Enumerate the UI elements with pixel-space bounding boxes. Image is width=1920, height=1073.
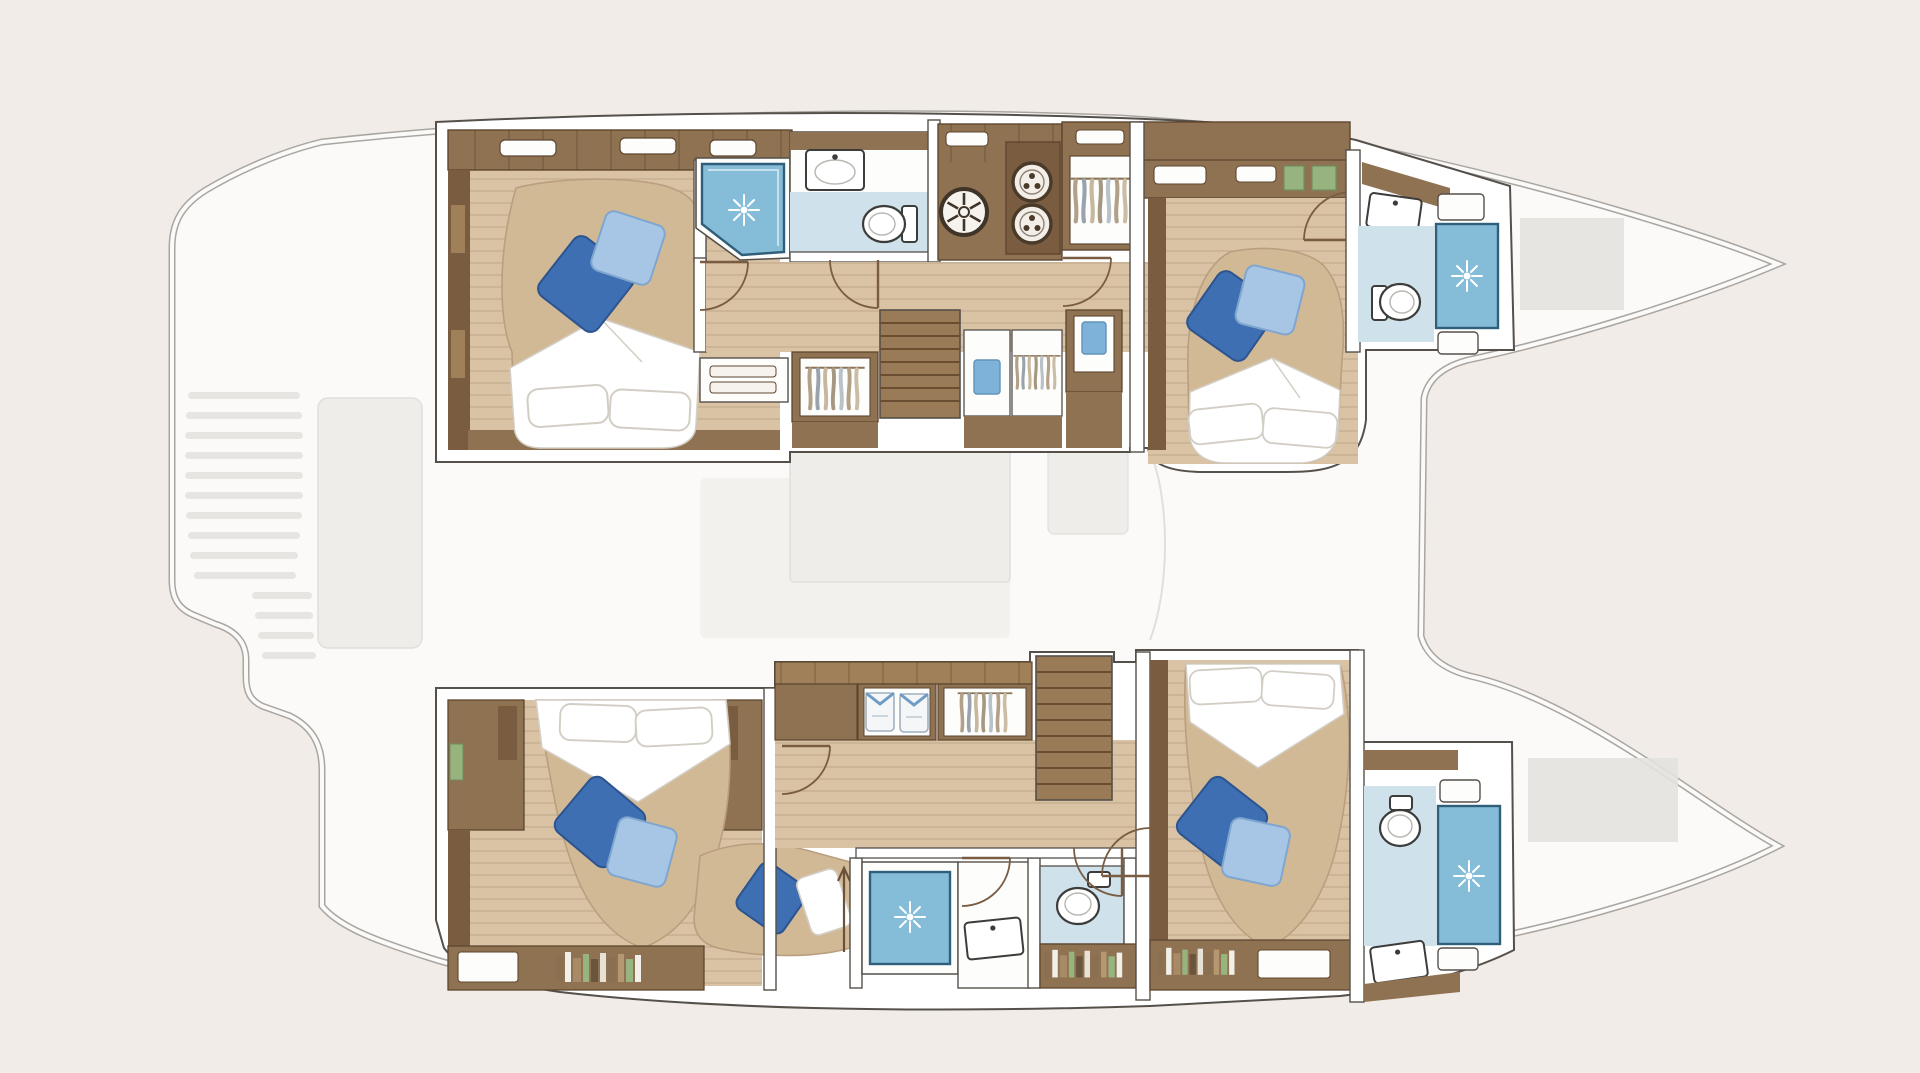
- drawer-unit: [700, 358, 788, 402]
- washbasin: [964, 917, 1024, 960]
- toilet: [1372, 284, 1420, 320]
- cabinet: [775, 684, 857, 740]
- bathroom-aft-port: [790, 132, 930, 262]
- starboard-hull: [436, 650, 1514, 1010]
- wardrobe-hanging: [1062, 122, 1140, 250]
- pillow-white: [1189, 667, 1263, 705]
- locker-base: [964, 416, 1062, 448]
- locker-towels-2: [1066, 310, 1122, 448]
- side-shelf: [451, 330, 465, 378]
- pillow-white: [527, 384, 609, 427]
- wall: [1028, 858, 1040, 988]
- pillow-white: [1188, 403, 1265, 445]
- pillow-light-blue: [1220, 816, 1291, 887]
- cabin-wall: [1136, 652, 1150, 1000]
- long-locker: [1140, 122, 1350, 198]
- shower-seat: [1438, 194, 1484, 220]
- side-lining: [1148, 198, 1166, 450]
- shower-aft-starboard: [862, 862, 958, 974]
- toilet: [863, 206, 917, 242]
- cockpit-bench-ghost: [318, 398, 422, 648]
- locker-hanging-small: [1012, 330, 1062, 416]
- foredeck-locker-ghost-starboard: [1528, 758, 1678, 842]
- cabinet-joints: [775, 662, 1032, 684]
- side-lining: [448, 830, 470, 948]
- folded-shirt-icon: [900, 694, 928, 732]
- bookshelf: [1150, 940, 1358, 990]
- inboard-lockers-starboard: [775, 662, 1032, 740]
- folded-shirt-locker: [858, 684, 936, 740]
- pillow-white: [559, 704, 636, 743]
- towel: [1082, 322, 1106, 354]
- locker-towels: [964, 330, 1010, 416]
- wall: [1124, 858, 1136, 948]
- pillow-light-blue: [1234, 264, 1307, 337]
- port-hull: [436, 113, 1514, 472]
- wardrobe-hanging-2: [792, 352, 878, 422]
- floorplan-canvas: [0, 0, 1920, 1073]
- bath-wall: [1346, 150, 1360, 352]
- book-stack: [1284, 166, 1304, 190]
- shower-fwd-starboard: [1438, 780, 1500, 970]
- shower-seat: [1438, 948, 1478, 970]
- water-jet-icon: [1454, 861, 1484, 891]
- catamaran-floorplan: [0, 0, 1920, 1073]
- cabin-wall: [694, 258, 706, 352]
- cabinet-slot: [498, 706, 517, 760]
- bath-wall: [1350, 650, 1364, 1002]
- burner-icon: [1013, 205, 1051, 243]
- toilet-room: [1028, 858, 1136, 988]
- bath-wall: [790, 252, 930, 262]
- washroom: [958, 862, 1030, 988]
- cabinet-slot: [710, 140, 756, 156]
- pillow-white: [1262, 407, 1338, 448]
- shower-seat: [1440, 780, 1480, 802]
- wardrobe-hanging: [938, 684, 1032, 740]
- water-jet-icon: [895, 902, 925, 932]
- washbasin: [806, 150, 864, 190]
- towel: [974, 360, 1000, 394]
- cabinet-slot: [946, 132, 988, 146]
- deck-hatch-icon: [941, 189, 987, 235]
- book-stack: [450, 744, 463, 780]
- pillow-white: [1261, 670, 1335, 709]
- water-jet-icon: [729, 195, 759, 225]
- folded-shirt-icon: [866, 693, 894, 731]
- double-bed: [1183, 248, 1343, 463]
- locker-base: [792, 422, 878, 448]
- bath-wall: [850, 858, 862, 988]
- cabin-wall: [1130, 122, 1144, 452]
- pillow-white: [635, 707, 713, 747]
- book-stack: [1312, 166, 1336, 190]
- bathroom-aft-starboard: [838, 858, 1136, 988]
- drawer-slot: [710, 366, 776, 377]
- cabin-wall: [764, 688, 776, 990]
- cabinet-slot: [620, 138, 676, 154]
- burner-icon: [1013, 163, 1051, 201]
- water-jet-icon: [1452, 261, 1482, 291]
- stairs-starboard: [1036, 656, 1112, 800]
- cabinet-slot: [500, 140, 556, 156]
- double-bed: [502, 179, 704, 448]
- corridor-wall: [856, 848, 1148, 858]
- side-lining: [1150, 660, 1168, 940]
- bookshelf: [1040, 944, 1136, 988]
- fwd-cabin-starboard: [1102, 652, 1358, 1000]
- locker-base: [1066, 392, 1122, 448]
- bath-top-cabinet: [1364, 750, 1458, 770]
- foredeck-locker-ghost-port: [1520, 218, 1624, 310]
- bath-top-cabinet: [790, 132, 930, 150]
- side-shelf: [451, 205, 465, 253]
- shower-seat: [1438, 332, 1478, 354]
- bookshelf: [448, 946, 704, 990]
- pillow-white: [609, 389, 691, 431]
- stairs-port: [880, 310, 960, 418]
- drawer-slot: [710, 382, 776, 393]
